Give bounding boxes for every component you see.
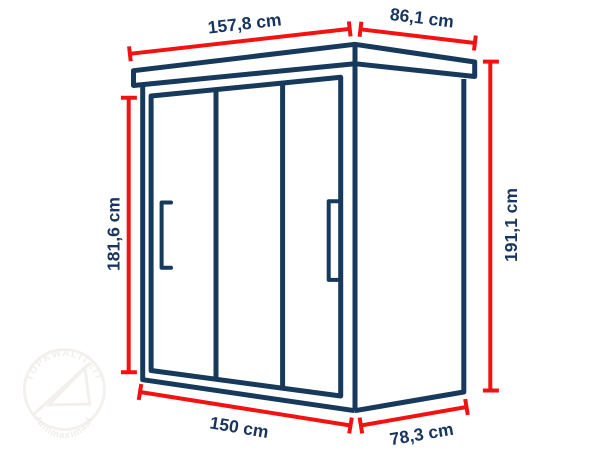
svg-text:157,8 cm: 157,8 cm — [207, 9, 283, 37]
svg-text:78,3 cm: 78,3 cm — [388, 419, 455, 449]
svg-text:181,6 cm: 181,6 cm — [103, 197, 123, 271]
svg-text:TOPKWALITEIT: TOPKWALITEIT — [24, 348, 104, 383]
svg-text:86,1 cm: 86,1 cm — [389, 4, 455, 32]
svg-text:191,1 cm: 191,1 cm — [501, 188, 521, 262]
svg-text:150 cm: 150 cm — [208, 413, 270, 443]
